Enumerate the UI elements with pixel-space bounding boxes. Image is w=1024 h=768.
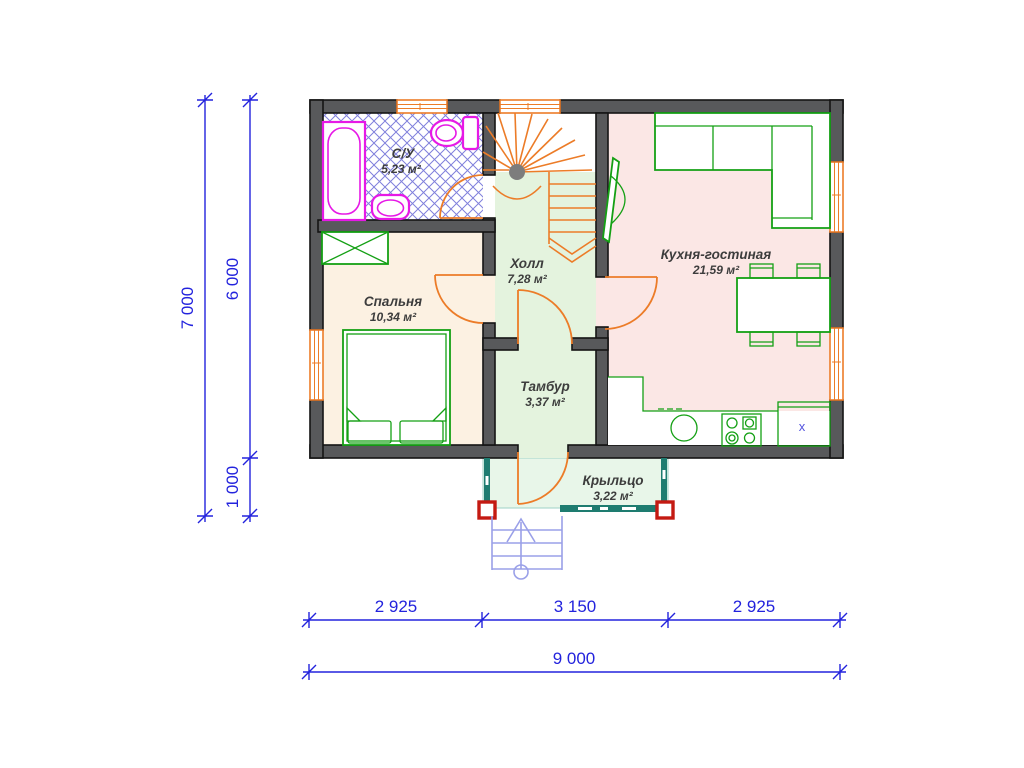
wall-hall-vestibule-2 bbox=[572, 338, 608, 350]
window-hall bbox=[500, 100, 560, 113]
porch-rail-mark-3 bbox=[622, 507, 636, 510]
wall-bath-bedroom bbox=[318, 220, 495, 232]
dim-label-3150: 3 150 bbox=[554, 597, 597, 616]
wardrobe bbox=[322, 232, 388, 264]
wall-top-3 bbox=[560, 100, 843, 113]
dim-label-2925-right: 2 925 bbox=[733, 597, 776, 616]
label-kitchen-name: Кухня-гостиная bbox=[661, 247, 771, 262]
wall-right-1 bbox=[830, 100, 843, 162]
wall-right-3 bbox=[830, 400, 843, 458]
dim-label-1000: 1 000 bbox=[223, 466, 242, 509]
entrance-doorway bbox=[518, 445, 568, 458]
window-bedroom bbox=[310, 330, 323, 400]
steps-direction-arrow bbox=[507, 519, 535, 569]
porch-post-left bbox=[479, 502, 495, 518]
wall-bath-hall-1 bbox=[483, 113, 495, 175]
dim-bottom-segments: 2 925 3 150 2 925 bbox=[302, 597, 847, 628]
dim-house-porch-height: 6 000 1 000 bbox=[223, 93, 258, 523]
label-hall-name: Холл bbox=[509, 256, 544, 271]
bathtub bbox=[323, 122, 365, 220]
wall-left-1 bbox=[310, 100, 323, 330]
porch-rail-mark-1 bbox=[578, 507, 592, 510]
fridge-mark: x bbox=[799, 419, 806, 434]
bedroom-doorway bbox=[483, 275, 495, 323]
porch-post-right bbox=[657, 502, 673, 518]
toilet bbox=[431, 117, 478, 149]
wall-left-2 bbox=[310, 400, 323, 458]
label-porch-area: 3,22 м² bbox=[593, 489, 634, 503]
dim-total-height: 7 000 bbox=[178, 93, 213, 523]
floor-plan-drawing: x С/У 5,23 м² Спальня 10,34 м² Холл 7,28… bbox=[0, 0, 1024, 768]
dim-label-6000: 6 000 bbox=[223, 258, 242, 301]
washbasin bbox=[372, 195, 409, 219]
porch-rail-right-mark bbox=[663, 470, 666, 479]
stair-newel-post bbox=[509, 164, 525, 180]
label-bedroom-area: 10,34 м² bbox=[370, 310, 417, 324]
porch-rail-left-mark bbox=[486, 476, 489, 485]
wall-right-2 bbox=[830, 232, 843, 328]
dining-table bbox=[737, 278, 830, 332]
label-bedroom-name: Спальня bbox=[364, 294, 422, 309]
dim-label-9000: 9 000 bbox=[553, 649, 596, 668]
vestibule-doorway bbox=[518, 338, 572, 350]
wall-hall-vestibule-1 bbox=[483, 338, 518, 350]
wall-bottom-1 bbox=[310, 445, 518, 458]
wall-bottom-2 bbox=[568, 445, 843, 458]
label-vestibule-area: 3,37 м² bbox=[525, 395, 566, 409]
label-vestibule-name: Тамбур bbox=[520, 379, 570, 394]
dim-label-7000: 7 000 bbox=[178, 287, 197, 330]
dim-total-width: 9 000 bbox=[302, 649, 847, 680]
dim-label-2925-left: 2 925 bbox=[375, 597, 418, 616]
wall-hall-kitchen-1 bbox=[596, 113, 608, 277]
label-porch-name: Крыльцо bbox=[583, 473, 644, 488]
floor-plan-page: x С/У 5,23 м² Спальня 10,34 м² Холл 7,28… bbox=[0, 0, 1024, 768]
label-bathroom-area: 5,23 м² bbox=[381, 162, 422, 176]
label-kitchen-area: 21,59 м² bbox=[692, 263, 740, 277]
label-bathroom-name: С/У bbox=[392, 146, 416, 161]
kitchen-doorway bbox=[596, 277, 608, 327]
bed bbox=[343, 330, 450, 445]
window-kitchen-2 bbox=[830, 328, 843, 400]
porch-rail-right bbox=[661, 458, 667, 506]
label-hall-area: 7,28 м² bbox=[507, 272, 548, 286]
porch-rail-bottom bbox=[560, 505, 663, 512]
window-bathroom bbox=[397, 100, 447, 113]
bathroom-doorway bbox=[483, 175, 495, 218]
wall-top-2 bbox=[447, 100, 500, 113]
window-kitchen-1 bbox=[830, 162, 843, 232]
porch-rail-mark-2 bbox=[600, 507, 608, 510]
entrance-steps bbox=[492, 516, 562, 579]
